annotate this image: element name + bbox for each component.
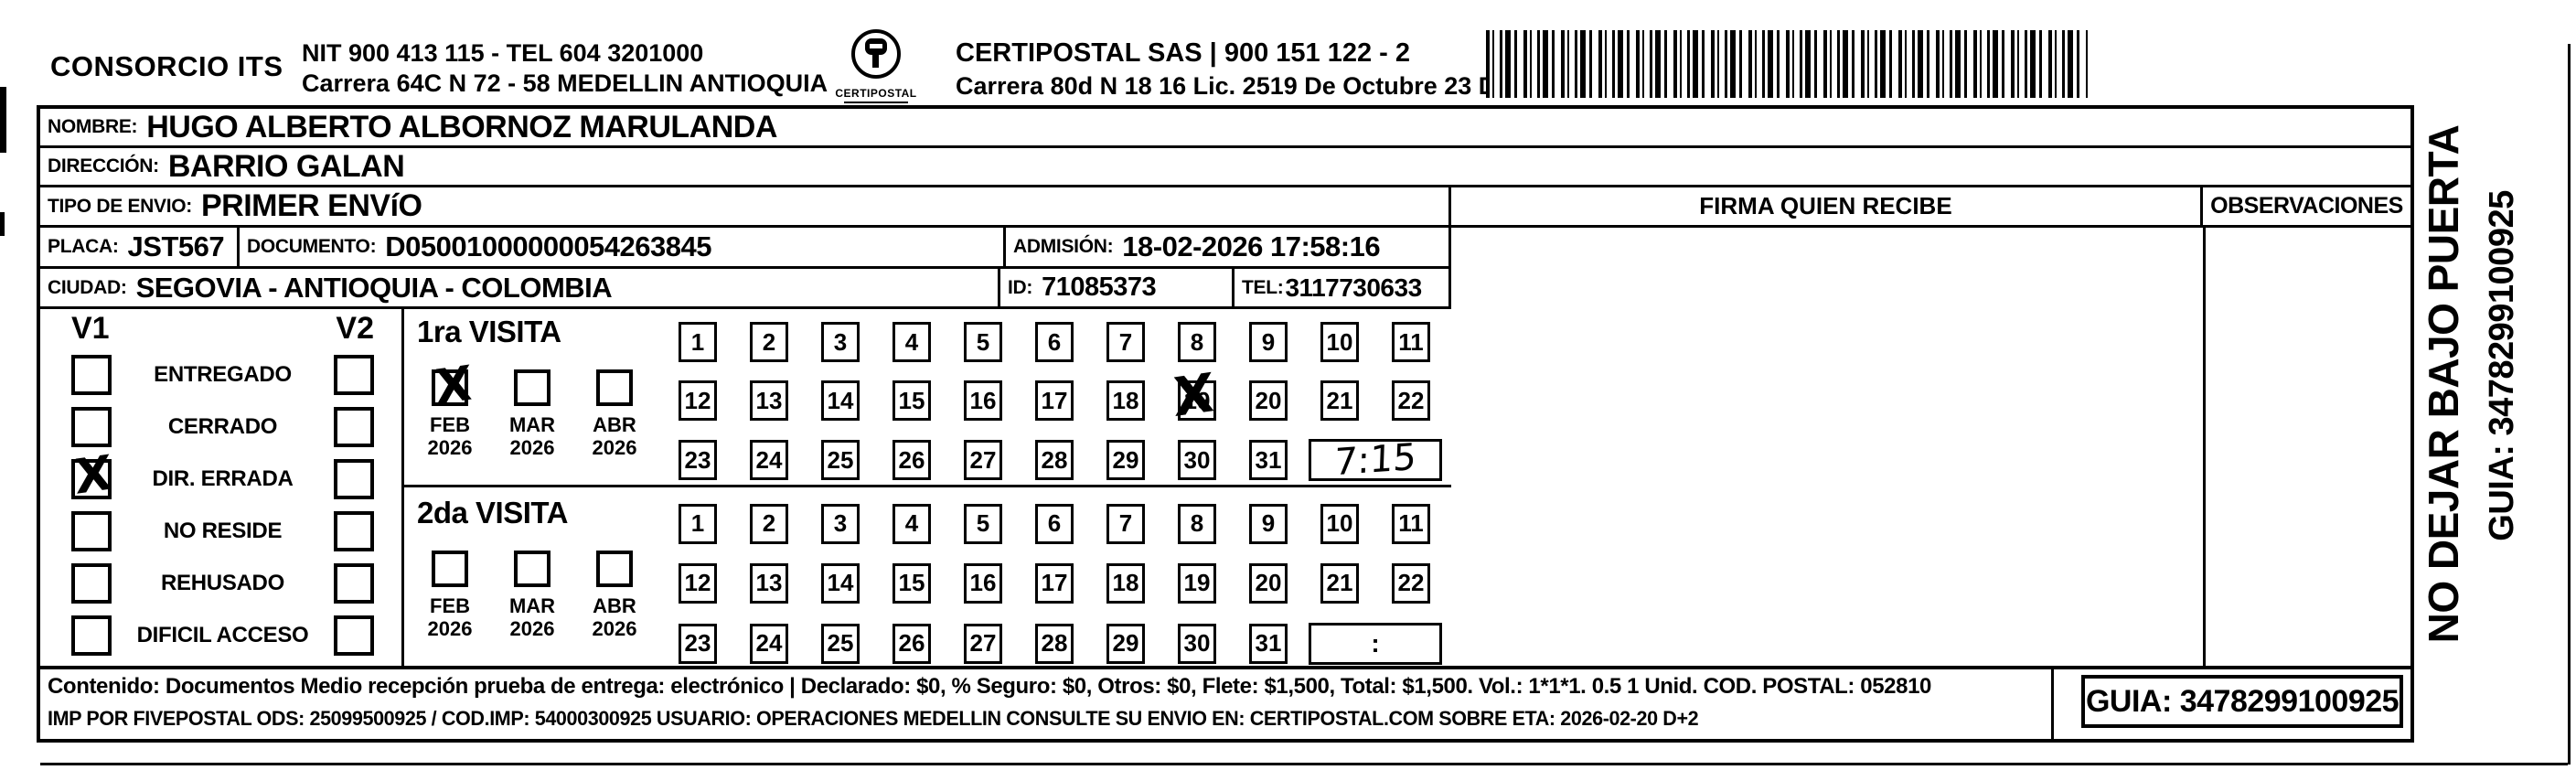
month-option: ABR2026 [582,551,647,640]
v1-checkbox [71,563,112,604]
scan-edge-right [2568,44,2571,765]
day-cell: 24 [750,624,788,664]
day-cell: 3 [821,504,860,544]
scan-artifact-left [0,212,5,236]
guia-number-box: GUIA: 3478299100925 [2081,675,2403,728]
month-option: FEB2026 [417,551,483,640]
month-checkbox [514,551,550,587]
month-name: FEB [430,413,470,436]
visit-month-block: 2da VISITA FEB2026MAR2026ABR2026 [404,490,662,668]
side-warning-text: NO DEJAR BAJO PUERTA [2419,119,2468,649]
row-placa-documento-admision: PLACA: JST567 DOCUMENTO: D05001000000054… [40,228,1451,269]
month-name: MAR [509,413,555,436]
v2-checkbox [334,407,374,447]
day-grid: 1234567891011121314151617181920212223242… [662,490,1451,668]
label-form: NOMBRE: HUGO ALBERTO ALBORNOZ MARULANDA … [37,105,2414,743]
tel-label: TEL: [1242,277,1283,299]
time-cell: : [1309,623,1442,665]
row-nombre: NOMBRE: HUGO ALBERTO ALBORNOZ MARULANDA [40,109,2410,148]
month-checkbox [514,369,550,406]
day-cell: 3 [821,322,860,362]
day-cell: 23 [679,624,717,664]
footer-line-imp: IMP POR FIVEPOSTAL ODS: 25099500925 / CO… [48,707,2001,731]
month-name: ABR [593,413,636,436]
day-cell: 9 [1249,504,1288,544]
day-grid: 12345678910111213141516171819X2021222324… [662,309,1451,485]
first-visit-section: 1ra VISITA XFEB2026MAR2026ABR2026 123456… [404,309,1451,487]
day-cell: 30 [1178,624,1216,664]
month-year: 2026 [510,436,555,459]
day-cell: 13 [750,563,788,604]
month-year: 2026 [593,617,637,640]
day-cell: 2 [750,322,788,362]
v2-checkbox [334,615,374,656]
row-tipo-envio: TIPO DE ENVIO: PRIMER ENVíO [40,187,1451,228]
visit-title: 1ra VISITA [417,315,662,349]
month-year: 2026 [428,617,473,640]
logo-text: CERTIPOSTAL [826,87,926,100]
admision-value: 18-02-2026 17:58:16 [1122,230,1380,263]
firma-header: FIRMA QUIEN RECIBE [1451,187,2203,225]
signature-observations-area: FIRMA QUIEN RECIBE OBSERVACIONES [1451,187,2410,666]
month-option: MAR2026 [499,369,565,459]
footer-text-block: Contenido: Documentos Medio recepción pr… [48,674,2041,731]
day-cell: 31 [1249,440,1288,480]
day-cell: 30 [1178,440,1216,480]
time-placeholder: : [1371,629,1379,658]
day-cell: 24 [750,440,788,480]
v1-checkbox [71,355,112,395]
status-row: ENTREGADO [40,348,401,401]
status-label: NO RESIDE [112,519,334,544]
tipo-envio-label: TIPO DE ENVIO: [48,196,192,218]
v2-checkbox [334,459,374,499]
month-checkboxes: FEB2026MAR2026ABR2026 [417,551,662,640]
shipping-label-scan: CONSORCIO ITS NIT 900 413 115 - TEL 604 … [0,0,2576,770]
day-cell: 7 [1106,504,1145,544]
day-cell: 10 [1320,322,1359,362]
tel-value: 3117730633 [1285,273,1421,303]
month-name: ABR [593,594,636,617]
day-cell: 9 [1249,322,1288,362]
day-cell: 28 [1035,624,1074,664]
visits-zone: 1ra VISITA XFEB2026MAR2026ABR2026 123456… [404,309,1451,666]
side-guia-text: GUIA: 3478299100925 [2483,151,2521,581]
day-cell: 22 [1392,563,1430,604]
second-visit-section: 2da VISITA FEB2026MAR2026ABR2026 1234567… [404,490,1451,668]
day-cell: 18 [1106,380,1145,421]
placa-cell: PLACA: JST567 [40,228,240,266]
day-cell: 5 [964,504,1002,544]
day-cell: 27 [964,440,1002,480]
barcode-icon [1486,30,2088,98]
status-row: REHUSADO [40,557,401,609]
admision-label: ADMISIÓN: [1013,236,1113,258]
day-cell: 16 [964,380,1002,421]
v2-header: V2 [336,311,374,347]
day-cell: 20 [1249,380,1288,421]
company-name: CONSORCIO ITS [50,50,283,83]
day-cell: 13 [750,380,788,421]
day-cell: 4 [893,504,931,544]
certipostal-line: CERTIPOSTAL SAS | 900 151 122 - 2 [956,37,1572,70]
v1-checkbox [71,511,112,551]
placa-label: PLACA: [48,236,119,258]
nombre-value: HUGO ALBERTO ALBORNOZ MARULANDA [146,110,777,145]
tipo-envio-value: PRIMER ENVíO [201,188,422,224]
day-cell: 8 [1178,322,1216,362]
nit-line: NIT 900 413 115 - TEL 604 3201000 [302,38,828,69]
handwritten-x-mark: X [434,359,473,412]
day-cell: 28 [1035,440,1074,480]
ciudad-value: SEGOVIA - ANTIOQUIA - COLOMBIA [136,272,613,305]
month-checkboxes: XFEB2026MAR2026ABR2026 [417,369,662,459]
visit-month-block: 1ra VISITA XFEB2026MAR2026ABR2026 [404,309,662,485]
certipostal-line: Carrera 80d N 18 16 Lic. 2519 De Octubre… [956,70,1572,102]
month-year: 2026 [593,436,637,459]
direccion-value: BARRIO GALAN [168,149,404,185]
day-cell: 16 [964,563,1002,604]
ciudad-cell: CIUDAD: SEGOVIA - ANTIOQUIA - COLOMBIA [40,269,1000,306]
status-label: DIFICIL ACCESO [112,623,334,648]
footer-line-contenido: Contenido: Documentos Medio recepción pr… [48,674,2041,700]
day-cell: 25 [821,440,860,480]
day-cell: 2 [750,504,788,544]
day-cell: 20 [1249,563,1288,604]
handwritten-x-mark: X [1172,366,1215,424]
v2-checkbox [334,563,374,604]
day-cell: 14 [821,380,860,421]
day-cell: 12 [679,380,717,421]
status-panel: V1 V2 ENTREGADOCERRADOXDIR. ERRADANO RES… [40,309,404,666]
visit-title: 2da VISITA [417,496,662,530]
observaciones-header: OBSERVACIONES [2203,187,2410,225]
day-cell: 31 [1249,624,1288,664]
handwritten-time: 7:15 [1333,436,1416,484]
status-label: DIR. ERRADA [112,466,334,492]
nombre-label: NOMBRE: [48,116,137,138]
day-cell: 19X [1178,380,1216,421]
day-cell: 21 [1320,563,1359,604]
status-label: REHUSADO [112,571,334,596]
v1-checkbox [71,615,112,656]
status-label: ENTREGADO [112,362,334,388]
day-cell: 14 [821,563,860,604]
day-cell: 29 [1106,624,1145,664]
row-direccion: DIRECCIÓN: BARRIO GALAN [40,148,2410,187]
id-cell: ID: 71085373 [1000,269,1235,306]
status-row: XDIR. ERRADA [40,453,401,505]
certipostal-address-block: CERTIPOSTAL SAS | 900 151 122 - 2 Carrer… [956,37,1572,102]
v2-checkbox [334,355,374,395]
day-cell: 7 [1106,322,1145,362]
month-checkbox [596,551,633,587]
ciudad-label: CIUDAD: [48,277,127,299]
sender-address-block: NIT 900 413 115 - TEL 604 3201000 Carrer… [302,38,828,99]
month-option: XFEB2026 [417,369,483,459]
documento-value: D05001000000054263845 [385,230,711,263]
day-cell: 15 [893,380,931,421]
documento-label: DOCUMENTO: [247,236,376,258]
signature-header-row: FIRMA QUIEN RECIBE OBSERVACIONES [1451,187,2410,228]
status-row: NO RESIDE [40,505,401,557]
month-year: 2026 [428,436,473,459]
placa-value: JST567 [128,230,225,263]
day-cell: 29 [1106,440,1145,480]
month-checkbox [596,369,633,406]
guia-cell: GUIA: 3478299100925 [2051,669,2410,739]
day-cell: 27 [964,624,1002,664]
day-cell: 6 [1035,322,1074,362]
status-row: DIFICIL ACCESO [40,609,401,661]
month-option: MAR2026 [499,551,565,640]
day-cell: 22 [1392,380,1430,421]
footer-strip: Contenido: Documentos Medio recepción pr… [40,666,2410,739]
day-cell: 5 [964,322,1002,362]
time-cell: 7:15 [1309,439,1442,481]
month-checkbox: X [432,369,468,406]
admision-cell: ADMISIÓN: 18-02-2026 17:58:16 [1006,228,1448,266]
day-cell: 25 [821,624,860,664]
tel-cell: TEL: 3117730633 [1235,269,1448,306]
v1-checkbox [71,407,112,447]
day-cell: 17 [1035,563,1074,604]
month-name: MAR [509,594,555,617]
day-cell: 10 [1320,504,1359,544]
v2-checkbox [334,511,374,551]
address-line: Carrera 64C N 72 - 58 MEDELLIN ANTIOQUIA [302,69,828,99]
day-cell: 21 [1320,380,1359,421]
status-row: CERRADO [40,401,401,453]
v1-header: V1 [71,311,110,347]
row-ciudad-id-tel: CIUDAD: SEGOVIA - ANTIOQUIA - COLOMBIA I… [40,269,1451,309]
day-cell: 26 [893,440,931,480]
scan-edge-bottom [40,763,2568,765]
month-option: ABR2026 [582,369,647,459]
handwritten-x-mark: X [74,449,112,502]
month-year: 2026 [510,617,555,640]
visit-column-headers: V1 V2 [40,309,401,347]
id-value: 71085373 [1042,273,1156,303]
status-rows: ENTREGADOCERRADOXDIR. ERRADANO RESIDEREH… [40,347,401,661]
day-cell: 12 [679,563,717,604]
day-cell: 23 [679,440,717,480]
day-cell: 26 [893,624,931,664]
id-label: ID: [1008,277,1032,299]
scan-artifact-left [0,87,6,153]
day-cell: 17 [1035,380,1074,421]
direccion-label: DIRECCIÓN: [48,155,159,177]
day-cell: 1 [679,504,717,544]
day-cell: 18 [1106,563,1145,604]
logo-seal-icon [850,27,903,80]
day-cell: 4 [893,322,931,362]
day-cell: 8 [1178,504,1216,544]
v1-checkbox: X [71,459,112,499]
status-label: CERRADO [112,414,334,440]
month-name: FEB [430,594,470,617]
month-checkbox [432,551,468,587]
documento-cell: DOCUMENTO: D05001000000054263845 [240,228,1006,266]
certipostal-logo-icon: CERTIPOSTAL [826,27,926,108]
day-cell: 1 [679,322,717,362]
day-cell: 11 [1392,504,1430,544]
day-cell: 19 [1178,563,1216,604]
day-cell: 15 [893,563,931,604]
day-cell: 6 [1035,504,1074,544]
observaciones-column-divider [2203,228,2206,666]
day-cell: 11 [1392,322,1430,362]
